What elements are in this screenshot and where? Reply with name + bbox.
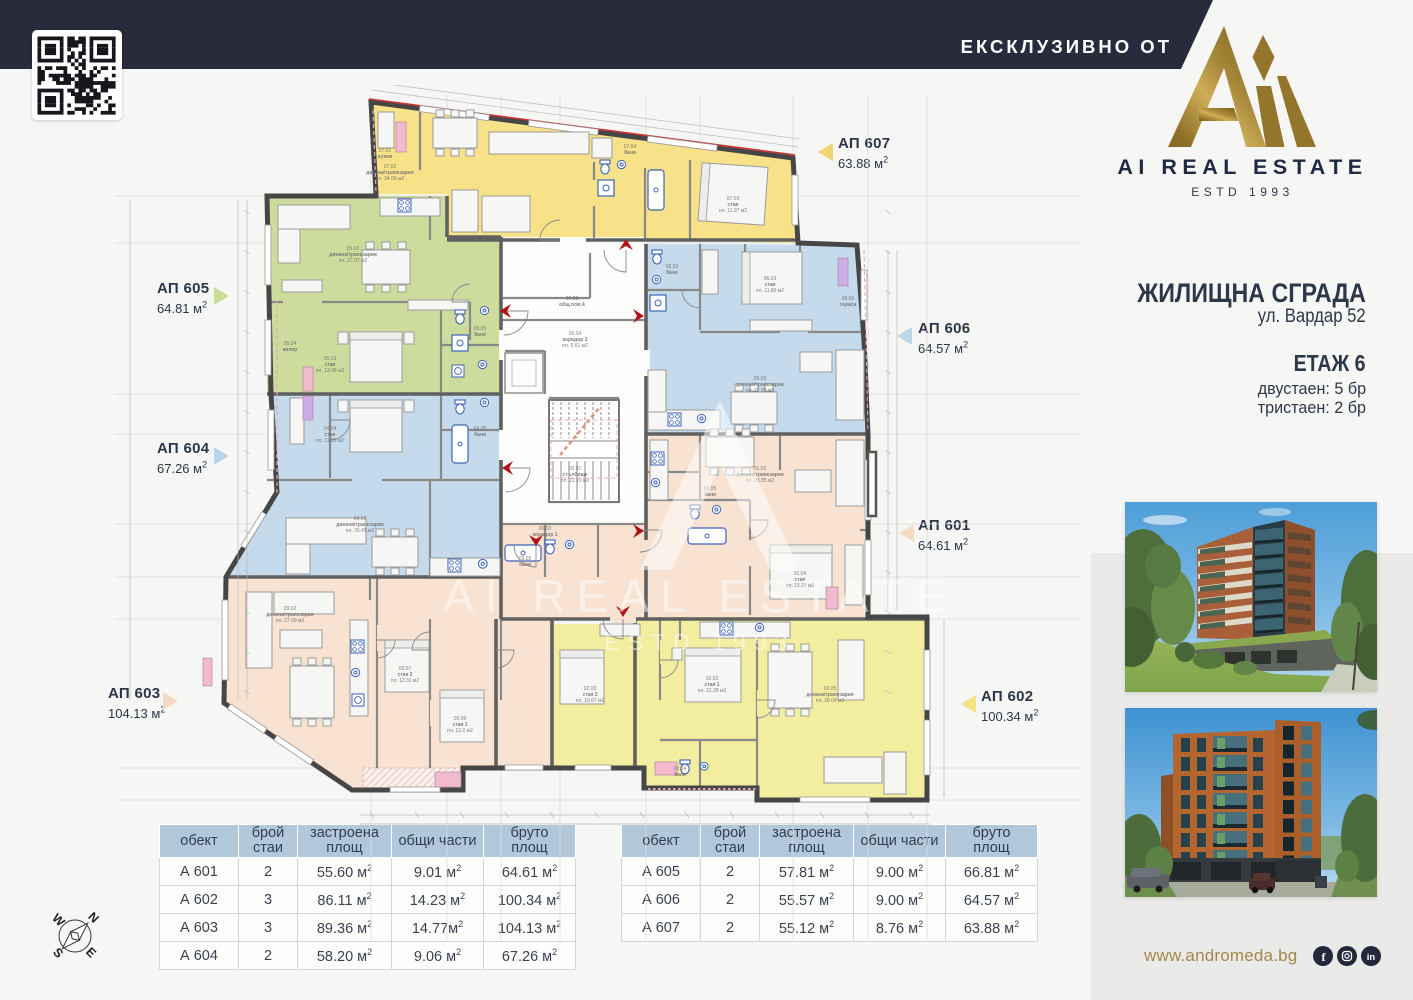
svg-text:баня: баня — [474, 431, 486, 438]
svg-text:баня: баня — [474, 331, 486, 338]
svg-text:пл. 11.97 м2: пл. 11.97 м2 — [719, 208, 747, 214]
svg-text:пл. 26.41 м2: пл. 26.41 м2 — [346, 528, 375, 534]
svg-text:пл. 28.04 м2: пл. 28.04 м2 — [816, 698, 845, 704]
svg-text:S: S — [50, 945, 66, 961]
svg-text:пл. 22.85 м2: пл. 22.85 м2 — [746, 388, 775, 394]
svg-text:W: W — [49, 911, 67, 929]
svg-text:кухня: кухня — [378, 154, 392, 160]
svg-text:пл. 12.0 м2: пл. 12.0 м2 — [447, 728, 473, 734]
svg-text:баня: баня — [666, 269, 678, 276]
svg-text:баня: баня — [674, 771, 686, 778]
svg-text:пл. 34.06 м2: пл. 34.06 м2 — [376, 176, 405, 182]
svg-text:пл. 27.07 м2: пл. 27.07 м2 — [339, 258, 368, 264]
svg-text:пл. 12.31 м2: пл. 12.31 м2 — [391, 678, 420, 684]
svg-text:тераса: тераса — [840, 302, 857, 308]
svg-text:in: in — [1367, 952, 1376, 963]
svg-text:баня: баня — [624, 149, 636, 156]
svg-text:пл. 10.67 м2: пл. 10.67 м2 — [576, 698, 605, 704]
svg-text:AI REAL ESTATE: AI REAL ESTATE — [443, 570, 957, 622]
svg-text:пл. 11.60 м2: пл. 11.60 м2 — [316, 438, 344, 444]
svg-text:пл. 12.28 м2: пл. 12.28 м2 — [698, 688, 727, 694]
svg-text:общ.пом.4: общ.пом.4 — [559, 301, 585, 308]
svg-text:стълбище: стълбище — [562, 471, 587, 478]
svg-text:баня: баня — [519, 561, 531, 568]
svg-text:пл. 27.09 м2: пл. 27.09 м2 — [276, 618, 305, 624]
svg-text:ESTD 1993: ESTD 1993 — [605, 629, 796, 655]
svg-text:пл. 11.80 м2: пл. 11.80 м2 — [756, 288, 784, 294]
svg-text:E: E — [83, 945, 99, 961]
svg-text:пл. 13.08 м2: пл. 13.08 м2 — [316, 368, 345, 374]
svg-text:пл. 22.19 м2: пл. 22.19 м2 — [561, 478, 590, 484]
svg-text:пл. 9.61 м2: пл. 9.61 м2 — [562, 343, 588, 349]
svg-text:килер: килер — [283, 347, 298, 353]
svg-text:коридор 1: коридор 1 — [532, 532, 557, 538]
